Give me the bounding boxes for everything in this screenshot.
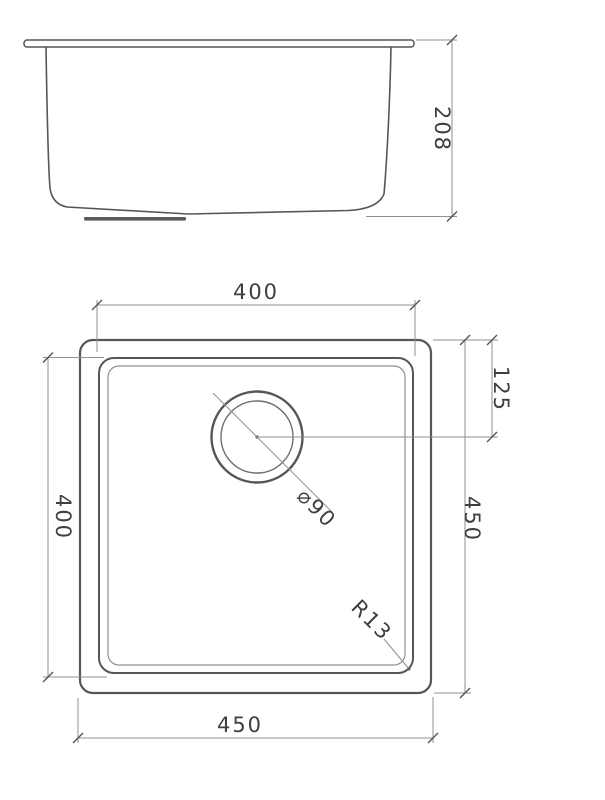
dimension-label-outer-height: 450 (460, 496, 484, 542)
dimension-label-inner-height: 400 (51, 494, 75, 540)
dimension-label-drain-offset: 125 (489, 366, 513, 412)
dimension-label-drain-diameter: ⌀90 (292, 484, 341, 533)
dimension-label-corner-radius: R13 (346, 595, 396, 645)
technical-drawing-sheet: 208 ⌀90 400 (0, 0, 605, 800)
side-view-foot-pad (84, 217, 186, 221)
side-view: 208 (24, 35, 457, 222)
drain: ⌀90 (212, 392, 342, 533)
dimension-label-outer-width: 450 (217, 713, 263, 737)
side-view-body-outline (46, 47, 391, 214)
dimension-height-208: 208 (366, 35, 457, 222)
side-view-flange (24, 40, 414, 47)
dimension-outer-width-450: 450 (73, 697, 438, 743)
radius-leader-endpoint (407, 667, 410, 670)
dimension-corner-radius-r13: R13 (346, 595, 410, 671)
dimension-label-height: 208 (430, 106, 454, 152)
dimension-inner-height-400: 400 (43, 353, 107, 683)
plan-view: ⌀90 400 125 400 (43, 280, 513, 743)
dimension-label-inner-width: 400 (233, 280, 279, 304)
dimension-outer-height-450: 450 (434, 335, 484, 698)
sink-dimension-drawing: 208 ⌀90 400 (0, 0, 605, 800)
dimension-drain-offset-125: 125 (259, 335, 513, 442)
dimension-inner-width-400: 400 (92, 280, 420, 356)
